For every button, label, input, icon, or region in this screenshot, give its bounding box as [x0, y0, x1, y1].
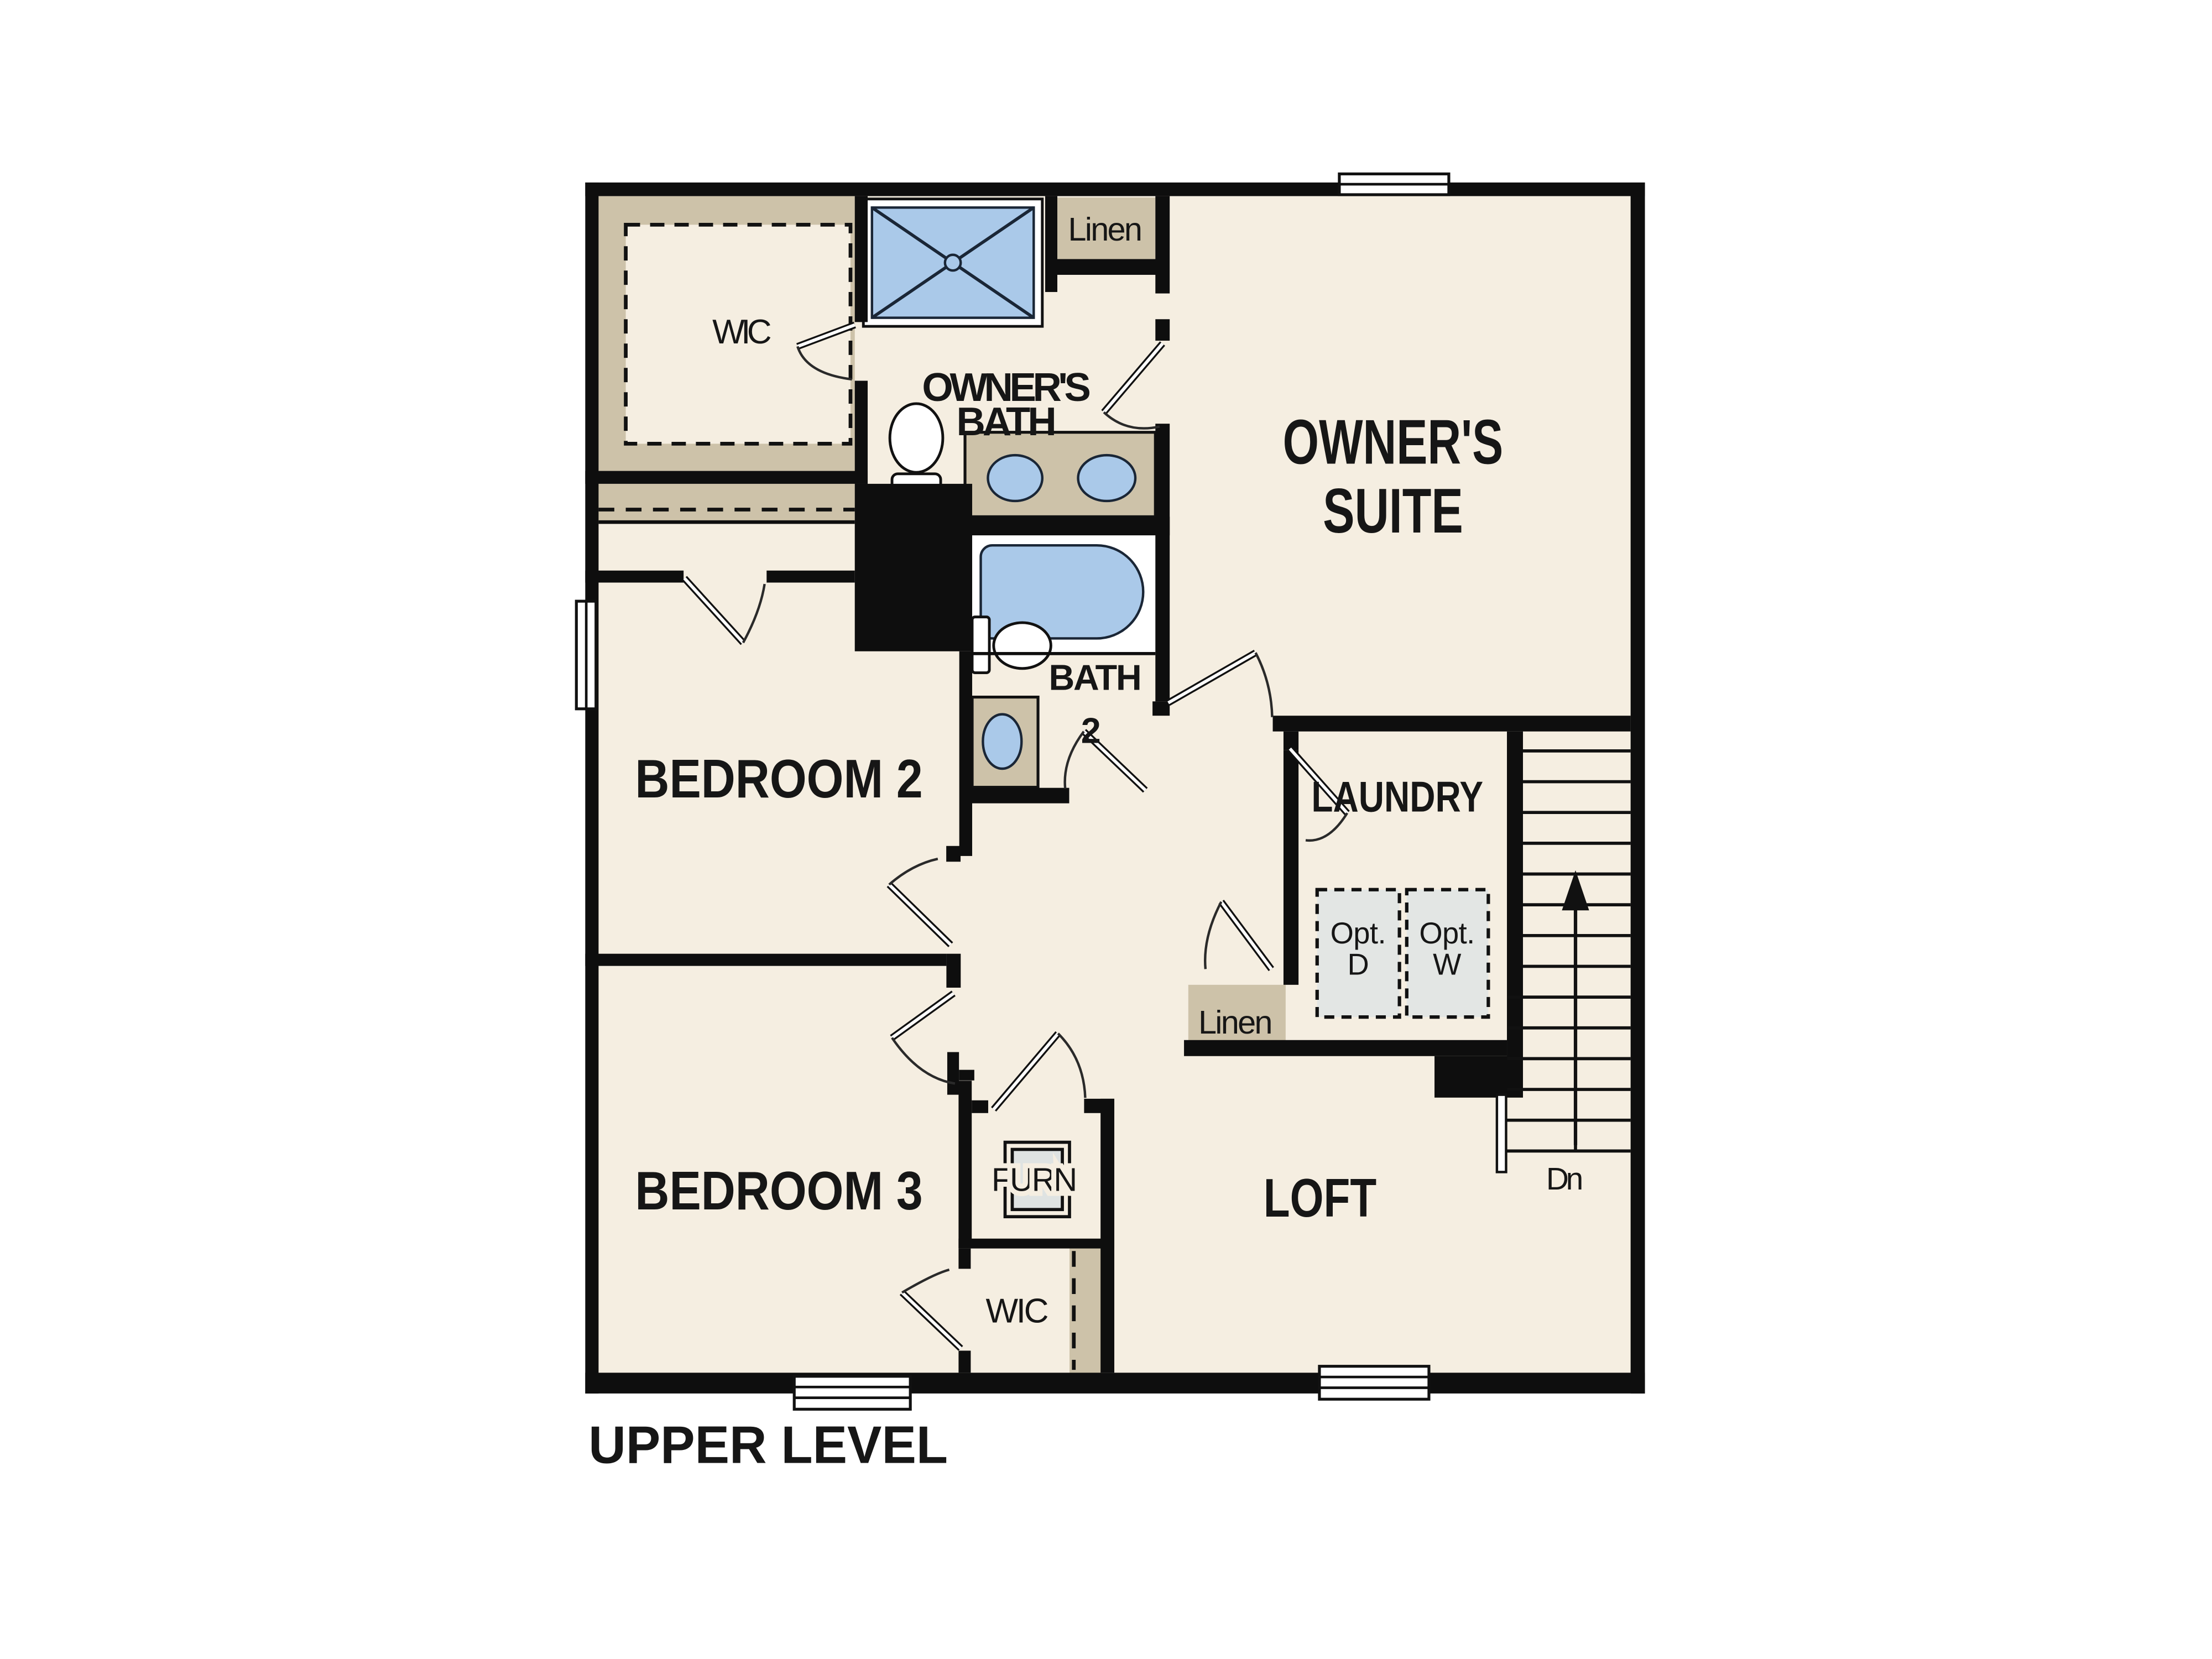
room-label-wic-upper: WIC [712, 313, 774, 351]
vanity-symbol [965, 432, 1155, 517]
room-label-linen-upper: Linen [1068, 211, 1142, 248]
floor-plan: WIC OWNER'S BATH Linen OWNER'S SUITE BED… [0, 0, 2212, 1659]
room-label-furnace: FURN [992, 1161, 1077, 1198]
window-top [1339, 174, 1449, 195]
label-opt-washer-1: Opt. [1419, 916, 1475, 950]
room-label-bath2-2: 2 [1081, 710, 1101, 750]
room-label-bedroom-3: BEDROOM 3 [635, 1160, 922, 1221]
wall-outer-left [585, 182, 598, 1394]
room-label-owners-bath-2: BATH [957, 399, 1057, 444]
plan-title: UPPER LEVEL [588, 1415, 948, 1474]
wall-outer-top [585, 182, 1645, 196]
sink-symbol-bath2 [972, 697, 1038, 787]
window-left [576, 601, 596, 709]
room-label-owners-suite-2: SUITE [1323, 476, 1463, 546]
stairs-railing [1497, 1095, 1506, 1172]
room-label-wic-lower: WIC [986, 1292, 1049, 1331]
window-bottom-left [794, 1376, 910, 1410]
room-label-owners-suite-1: OWNER'S [1283, 408, 1504, 478]
room-label-linen-mid: Linen [1198, 1004, 1273, 1041]
wall-outer-bottom [585, 1373, 1645, 1394]
bedroom2-closet-strip [598, 484, 854, 521]
shower-symbol [863, 199, 1042, 326]
room-label-laundry: LAUNDRY [1311, 774, 1483, 821]
room-label-bath2-1: BATH [1048, 658, 1141, 698]
tub-symbol [981, 545, 1144, 638]
label-stairs-down: Dn [1546, 1161, 1583, 1197]
window-bottom-right [1319, 1366, 1429, 1400]
label-opt-dryer-2: D [1347, 948, 1369, 982]
wall-outer-right [1631, 182, 1645, 1394]
room-label-bedroom-2: BEDROOM 2 [635, 748, 922, 809]
room-label-loft: LOFT [1264, 1167, 1376, 1228]
label-opt-dryer-1: Opt. [1331, 916, 1386, 950]
label-opt-washer-2: W [1433, 948, 1462, 982]
